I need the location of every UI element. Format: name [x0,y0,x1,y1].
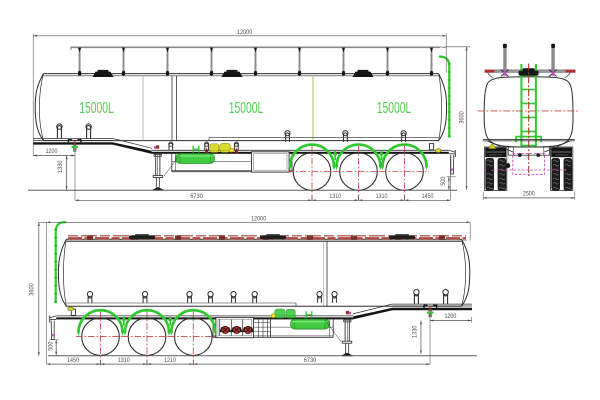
svg-text:15000L: 15000L [377,100,412,117]
svg-text:1450: 1450 [67,357,79,364]
svg-text:1330: 1330 [57,160,64,173]
svg-text:6730: 6730 [304,357,317,364]
svg-text:1450: 1450 [422,193,434,200]
svg-text:500: 500 [440,176,447,186]
svg-text:3600: 3600 [458,111,465,124]
svg-text:1310: 1310 [376,193,388,200]
svg-text:1200: 1200 [445,313,457,320]
svg-text:1310: 1310 [329,193,341,200]
svg-text:1210: 1210 [164,357,176,364]
svg-text:500: 500 [47,341,54,351]
svg-text:12000: 12000 [237,29,253,36]
svg-text:15000L: 15000L [79,100,114,117]
svg-text:12000: 12000 [251,216,267,223]
svg-text:1310: 1310 [118,357,130,364]
svg-text:3600: 3600 [28,283,35,296]
svg-text:1200: 1200 [46,148,58,155]
svg-text:6730: 6730 [190,193,203,200]
svg-text:1330: 1330 [411,325,418,338]
svg-text:15000L: 15000L [229,100,264,117]
svg-text:2500: 2500 [523,190,535,197]
